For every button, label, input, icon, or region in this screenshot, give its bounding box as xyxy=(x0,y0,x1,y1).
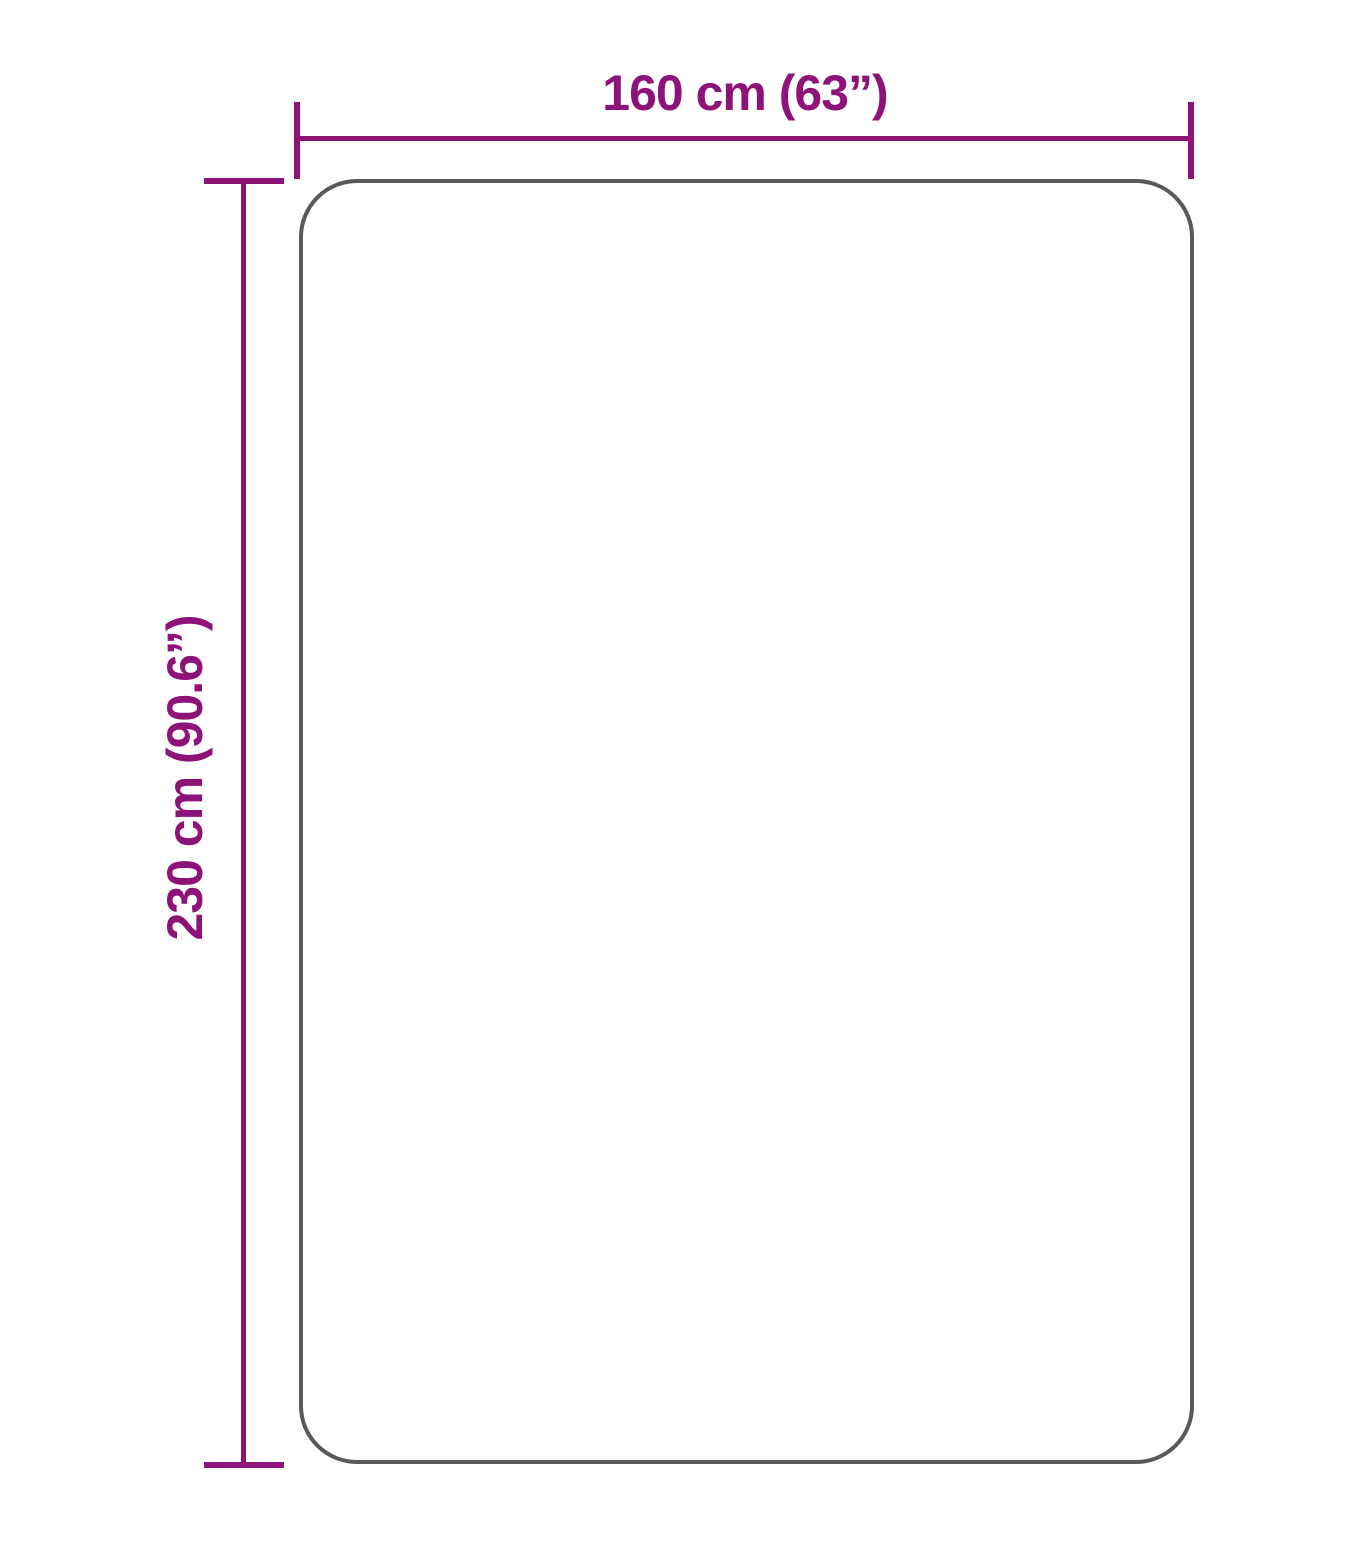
width-dimension-label: 160 cm (63”) xyxy=(297,66,1193,121)
height-dimension-cap-bottom xyxy=(204,1462,284,1468)
height-dimension-line xyxy=(241,179,246,1467)
dimension-diagram: 160 cm (63”) 230 cm (90.6”) xyxy=(0,0,1360,1555)
height-dimension-cap-top xyxy=(204,178,284,184)
rug-outline xyxy=(299,179,1194,1464)
width-dimension-line xyxy=(296,136,1193,141)
height-dimension-label: 230 cm (90.6”) xyxy=(157,478,213,1078)
